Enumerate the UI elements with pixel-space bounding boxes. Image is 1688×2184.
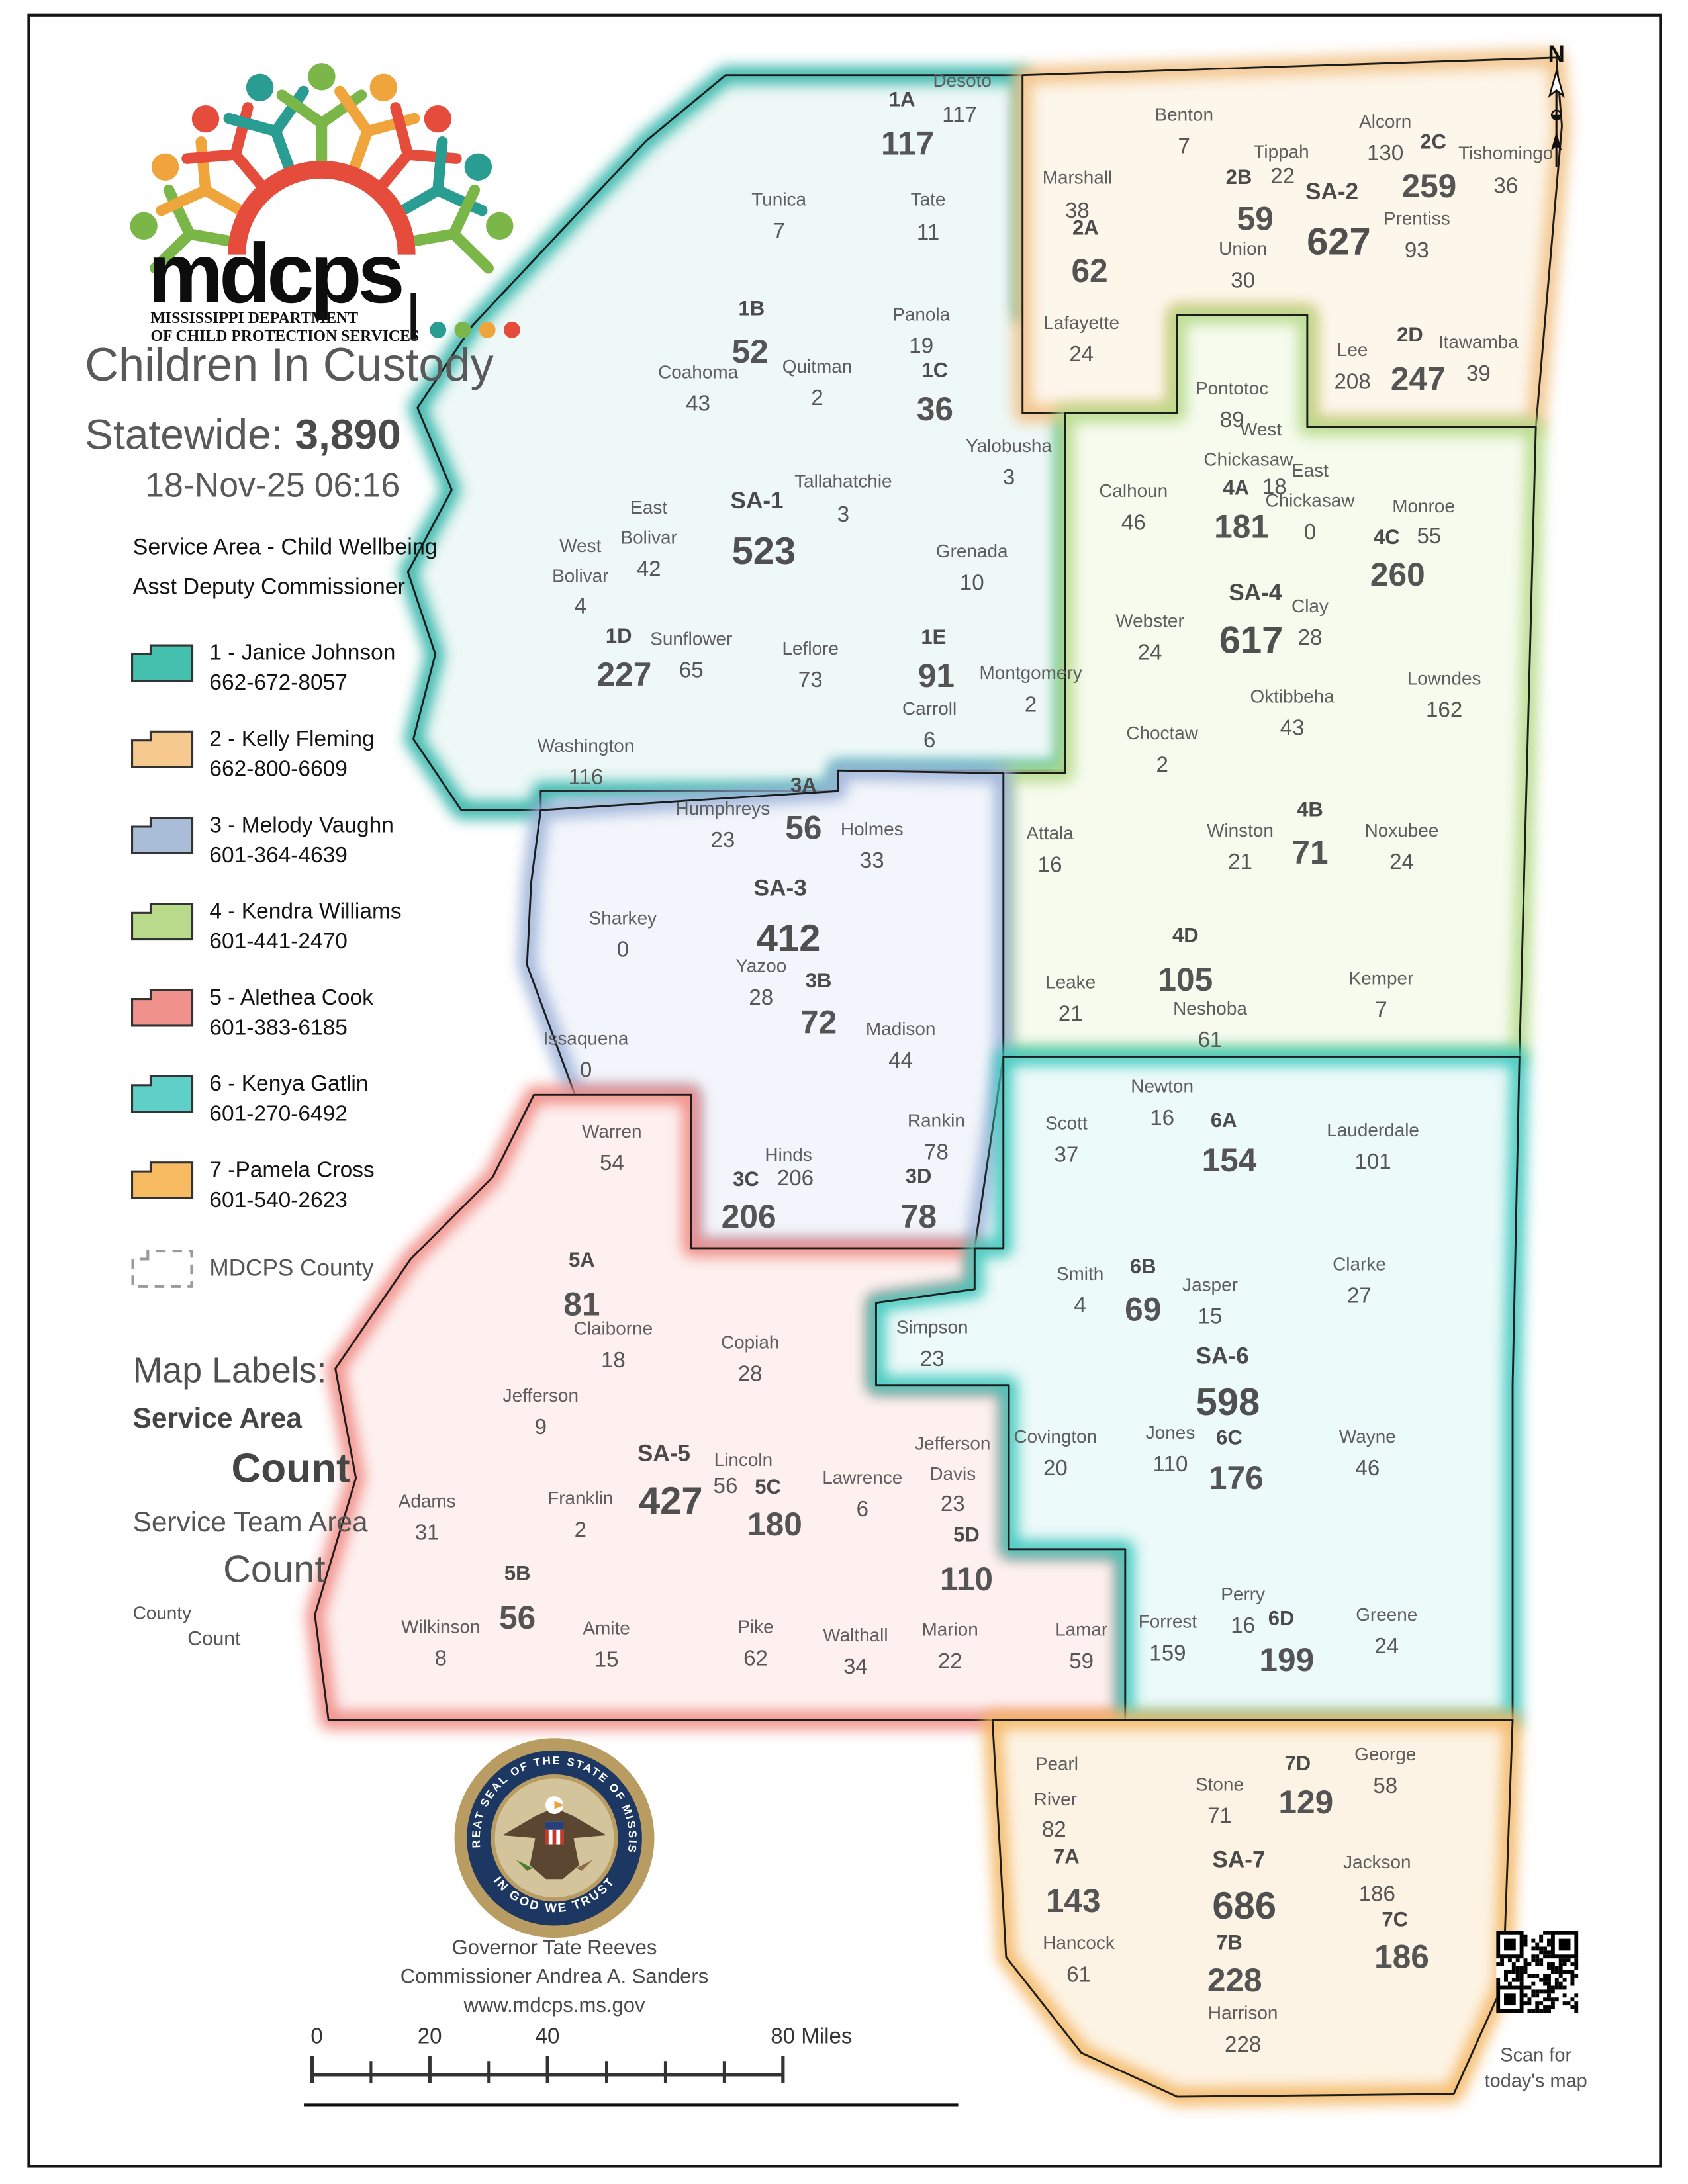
logo-person-icon xyxy=(416,190,514,268)
page-title: Children In Custody xyxy=(85,340,493,393)
map-labels-key: Map Labels: Service Area Count Service T… xyxy=(133,1349,368,1651)
legend-phone: 601-441-2470 xyxy=(209,927,401,956)
legend-label: 4 - Kendra Williams xyxy=(209,896,401,926)
legend-item-1: 1 - Janice Johnson 662-672-8057 xyxy=(130,638,401,698)
logo-dot-orange xyxy=(479,322,496,338)
logo-dot-teal xyxy=(430,322,446,338)
legend-label: 6 - Kenya Gatlin xyxy=(209,1069,368,1099)
logo-dot-red xyxy=(504,322,520,338)
legend-item-6: 6 - Kenya Gatlin 601-270-6492 xyxy=(130,1069,401,1129)
mississippi-state-seal: THE GREAT SEAL OF THE STATE OF MISSISSIP… xyxy=(451,1735,657,1940)
legend-item-7: 7 -Pamela Cross 601-540-2623 xyxy=(130,1155,401,1215)
legend-phone: 601-540-2623 xyxy=(209,1185,374,1215)
legend-mdcps-county: MDCPS County xyxy=(130,1248,373,1289)
governor-credit: Governor Tate Reeves xyxy=(452,1936,657,1960)
map-subtitle: Service Area - Child Wellbeing Asst Depu… xyxy=(133,528,459,607)
map-labels-heading: Map Labels: xyxy=(133,1349,368,1392)
legend-label: 5 - Alethea Cook xyxy=(209,983,373,1013)
qr-caption-line2: today's map xyxy=(1485,2068,1587,2094)
logo-wordmark: mdcps xyxy=(148,226,402,321)
key-team-area: Service Team Area xyxy=(133,1507,368,1540)
map-scale-bar: 0 20 40 80 Miles xyxy=(308,2023,896,2091)
legend-label: 2 - Kelly Fleming xyxy=(209,724,374,754)
legend-swatch-icon xyxy=(130,899,194,942)
legend-swatch-icon xyxy=(130,985,194,1028)
qr-code xyxy=(1496,1931,1578,2013)
logo-sub1: MISSISSIPPI DEPARTMENT xyxy=(150,310,358,327)
scale-0: 0 xyxy=(310,2024,322,2048)
key-team-area-count: Count xyxy=(223,1548,368,1592)
north-arrow-icon xyxy=(1544,68,1569,175)
commissioner-credit: Commissioner Andrea A. Sanders xyxy=(400,1966,709,1989)
qr-caption-line1: Scan for xyxy=(1485,2042,1587,2068)
service-area-legend: 1 - Janice Johnson 662-672-8057 2 - Kell… xyxy=(130,638,401,1242)
legend-phone: 662-672-8057 xyxy=(209,668,395,698)
legend-item-5: 5 - Alethea Cook 601-383-6185 xyxy=(130,983,401,1043)
key-service-area: Service Area xyxy=(133,1403,368,1436)
statewide-label: Statewide: xyxy=(85,410,283,458)
mdcps-logo: mdcps MISSISSIPPI DEPARTMENT OF CHILD PR… xyxy=(107,49,558,347)
legend-label: 3 - Melody Vaughn xyxy=(209,810,394,840)
legend-swatch-icon xyxy=(130,1071,194,1114)
legend-swatch-icon xyxy=(130,813,194,855)
logo-dot-green xyxy=(455,322,471,338)
report-datetime: 18-Nov-25 06:16 xyxy=(145,467,400,506)
key-county-count: Count xyxy=(187,1629,367,1651)
legend-swatch-icon xyxy=(130,727,194,769)
north-label: N xyxy=(1544,41,1569,68)
scale-80: 80 Miles xyxy=(771,2024,852,2048)
statewide-total: Statewide: 3,890 xyxy=(85,410,401,459)
logo-divider xyxy=(410,293,416,340)
legend-phone: 601-270-6492 xyxy=(209,1099,368,1129)
key-service-area-count: Count xyxy=(231,1447,367,1493)
legend-swatch-icon xyxy=(130,641,194,683)
agency-website: www.mdcps.ms.gov xyxy=(463,1994,645,2017)
legend-label: 1 - Janice Johnson xyxy=(209,638,395,668)
legend-phone: 601-383-6185 xyxy=(209,1013,373,1042)
scale-20: 20 xyxy=(418,2024,442,2048)
county-outline-icon xyxy=(130,1248,194,1289)
north-arrow: N xyxy=(1544,41,1569,182)
legend-item-3: 3 - Melody Vaughn 601-364-4639 xyxy=(130,810,401,870)
footer-divider xyxy=(304,2103,958,2106)
legend-phone: 601-364-4639 xyxy=(209,841,394,870)
legend-item-4: 4 - Kendra Williams 601-441-2470 xyxy=(130,896,401,956)
legend-item-2: 2 - Kelly Fleming 662-800-6609 xyxy=(130,724,401,784)
key-county: County xyxy=(133,1603,368,1623)
mdcps-county-label: MDCPS County xyxy=(209,1253,373,1283)
statewide-value: 3,890 xyxy=(295,410,400,458)
legend-phone: 662-800-6609 xyxy=(209,754,374,784)
scale-40: 40 xyxy=(536,2024,560,2048)
qr-caption: Scan for today's map xyxy=(1485,2042,1587,2094)
legend-label: 7 -Pamela Cross xyxy=(209,1155,374,1185)
map-page: Desoto1171A117Tunica7Tate111B52Coahoma43… xyxy=(0,0,1688,2184)
legend-swatch-icon xyxy=(130,1158,194,1200)
